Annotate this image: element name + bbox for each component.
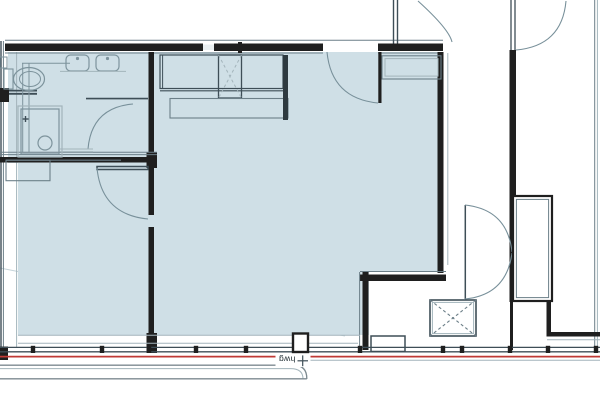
wall-pier [0,347,8,361]
facade-post [293,334,308,353]
tall-closet [513,196,552,301]
hwg-label: hwg [279,355,296,365]
wall-joint-gap [203,45,214,51]
annotation-hwg: hwg [276,354,311,368]
threshold-box [371,336,405,352]
shaft-x-icon [430,300,476,336]
floor-plan-page: hwg [0,0,600,400]
wall-pier [0,88,9,102]
floor-plan-canvas: hwg [0,0,600,400]
kitchen-stub-wall [283,55,288,120]
shaft-wall-tick [238,42,242,53]
